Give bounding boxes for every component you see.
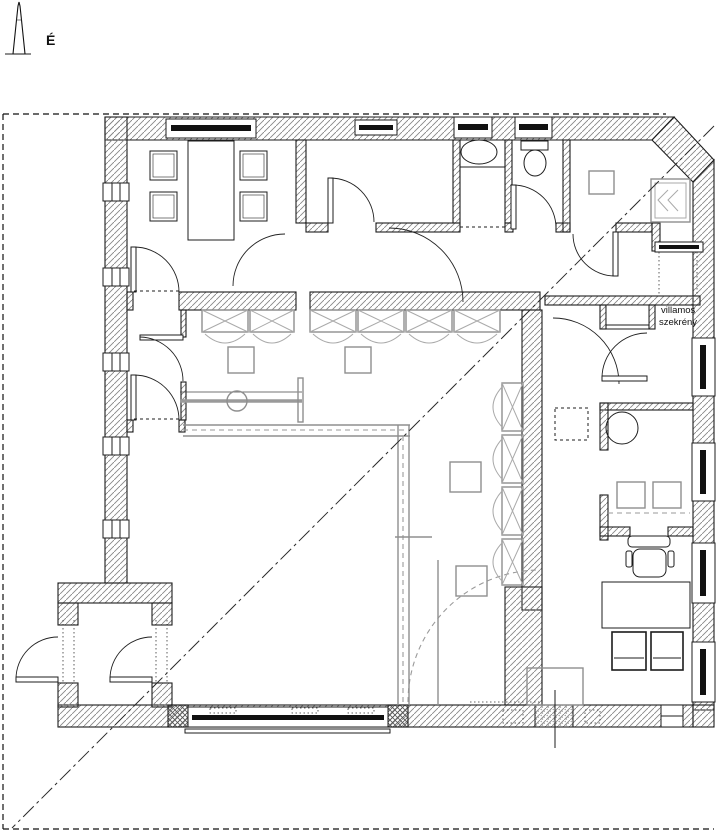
door-wc xyxy=(511,185,556,229)
shaft-dashed-square xyxy=(555,408,588,440)
visitor-chairs xyxy=(612,632,683,670)
door-window-room xyxy=(328,178,374,223)
wardrobe-column xyxy=(493,383,523,585)
meeting-chairs xyxy=(150,151,267,221)
vestibule-wall-left-a xyxy=(58,603,78,625)
door-strip-3 xyxy=(131,375,179,420)
door-vestibule-outer xyxy=(16,620,74,684)
hall-block-1 xyxy=(450,462,481,492)
glass-partition xyxy=(183,425,438,705)
door-corner-room xyxy=(573,232,618,276)
wall-corner-se xyxy=(693,705,714,727)
office-desk xyxy=(602,582,690,628)
stool-2 xyxy=(345,347,371,373)
window-meeting-room xyxy=(166,119,256,138)
washbasin xyxy=(460,140,505,167)
door-vestibule-inner xyxy=(110,620,167,684)
label-villamos: villamos xyxy=(661,305,696,316)
vestibule-wall-right-a xyxy=(152,603,172,625)
equipment-arrow-box xyxy=(651,179,690,222)
window-top-2 xyxy=(355,120,397,135)
north-arrow: É xyxy=(5,2,55,54)
vestibule-wall-top xyxy=(58,583,172,603)
vestibule-wall-left-b xyxy=(58,683,78,707)
office-chair xyxy=(626,536,674,577)
window-washroom xyxy=(454,117,492,138)
hall-block-2 xyxy=(456,566,487,596)
equipment-block xyxy=(589,171,614,194)
annotation-electrical-cabinet: villamos szekrény xyxy=(659,305,697,328)
door-round-table-room xyxy=(602,333,647,381)
door-corridor xyxy=(553,318,619,384)
label-szekreny: szekrény xyxy=(659,317,697,328)
door-junction-left xyxy=(233,234,285,286)
vestibule-wall-right-b xyxy=(152,683,172,707)
north-arrow-icon xyxy=(13,2,25,54)
bench-counter xyxy=(180,378,303,422)
door-junction-right xyxy=(389,228,463,302)
electrical-cabinet-box xyxy=(606,305,649,325)
meeting-table xyxy=(188,141,234,240)
wardrobe-row xyxy=(202,310,500,343)
round-table xyxy=(606,412,638,444)
door-strip-1 xyxy=(131,247,179,292)
fixtures xyxy=(180,140,649,585)
door-strip-2 xyxy=(140,335,183,381)
stool-1 xyxy=(228,347,254,373)
north-label: É xyxy=(46,32,55,48)
floor-plan-canvas: É xyxy=(0,0,716,832)
window-wc xyxy=(515,117,552,138)
interior-walls xyxy=(127,140,700,705)
seat-blocks xyxy=(608,482,690,513)
toilet xyxy=(521,141,548,176)
